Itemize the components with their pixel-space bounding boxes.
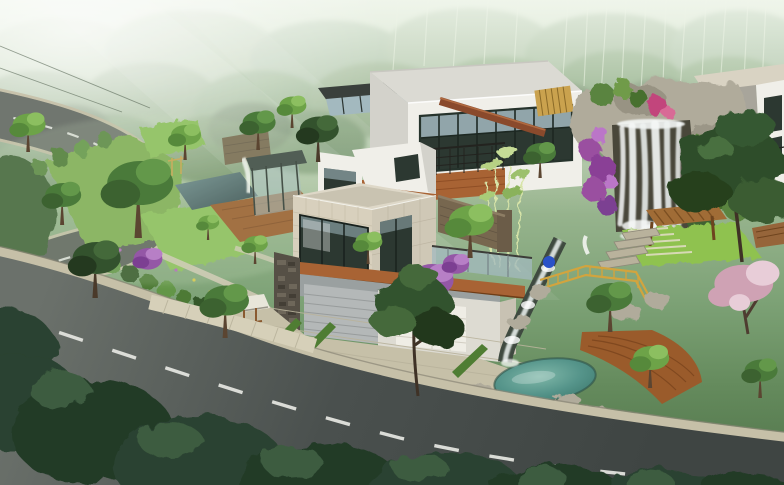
timber-fence bbox=[534, 86, 573, 117]
garage-door-left bbox=[304, 284, 378, 344]
rendering-canvas bbox=[0, 0, 784, 485]
pond-inlet-foam bbox=[501, 359, 519, 367]
blue-ornament bbox=[543, 256, 555, 268]
villa-rendering bbox=[0, 0, 784, 485]
